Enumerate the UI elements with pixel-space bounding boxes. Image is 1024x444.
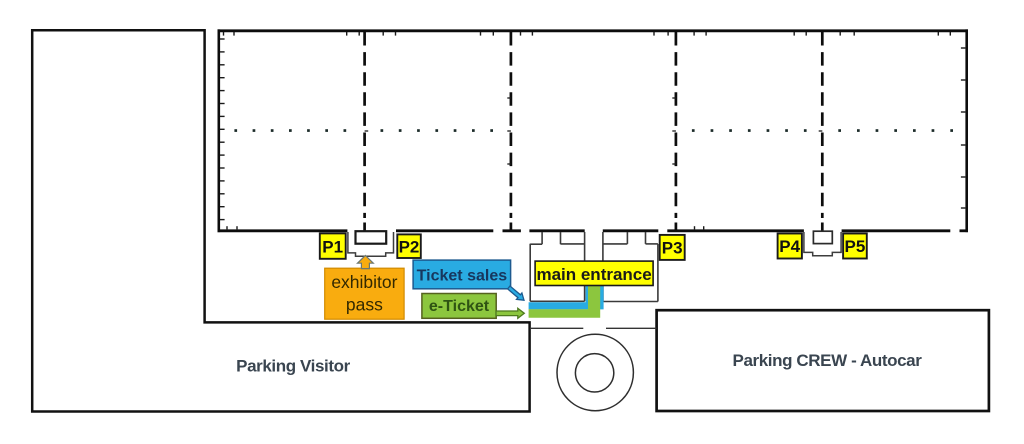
svg-text:P4: P4: [779, 237, 800, 256]
svg-text:pass: pass: [346, 295, 383, 315]
svg-text:e-Ticket: e-Ticket: [429, 298, 490, 315]
svg-text:Parking Visitor: Parking Visitor: [236, 357, 350, 376]
svg-text:P5: P5: [845, 237, 866, 256]
svg-text:P1: P1: [322, 237, 343, 256]
svg-text:exhibitor: exhibitor: [331, 272, 397, 292]
svg-text:Ticket sales: Ticket sales: [417, 268, 508, 285]
svg-text:Parking CREW - Autocar: Parking CREW - Autocar: [733, 351, 923, 370]
svg-text:main entrance: main entrance: [536, 265, 651, 284]
svg-text:P2: P2: [399, 238, 420, 257]
svg-text:P3: P3: [662, 239, 683, 258]
